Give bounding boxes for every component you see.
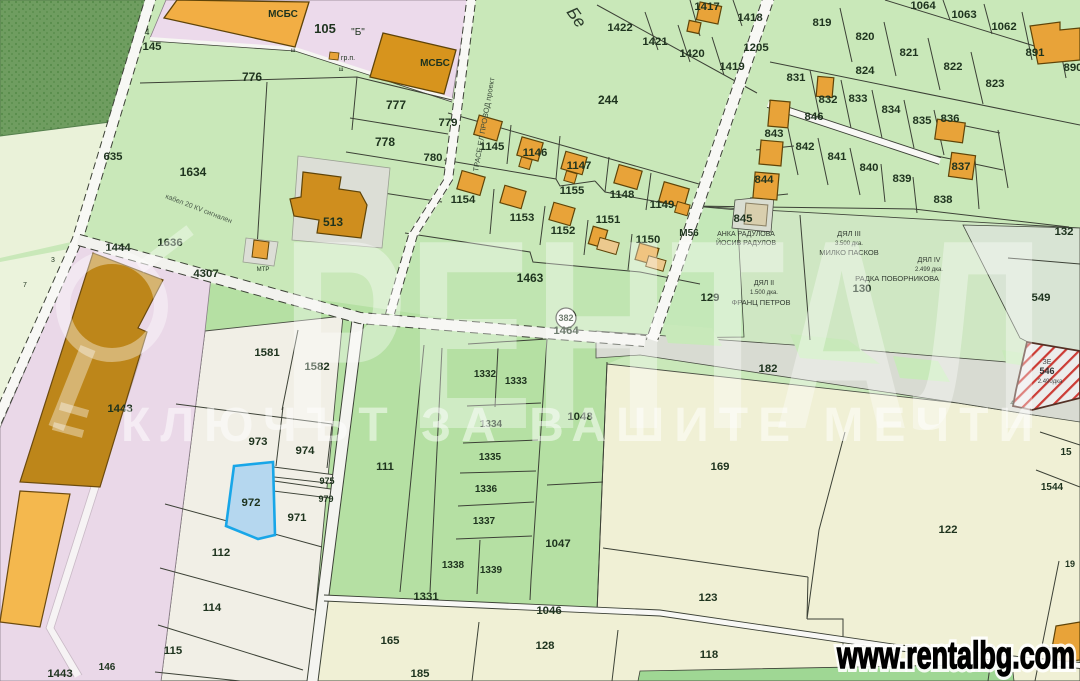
svg-text:"Б": "Б" (351, 27, 365, 38)
svg-text:979: 979 (318, 494, 333, 504)
svg-text:972: 972 (241, 497, 260, 509)
svg-text:1339: 1339 (480, 565, 503, 576)
svg-text:1062: 1062 (991, 21, 1016, 33)
svg-text:1418: 1418 (737, 12, 762, 24)
svg-text:1063: 1063 (951, 9, 976, 21)
svg-text:19: 19 (1065, 559, 1075, 569)
svg-text:777: 777 (386, 98, 406, 112)
svg-text:1205: 1205 (743, 42, 769, 54)
svg-text:1420: 1420 (679, 48, 704, 60)
svg-text:114: 114 (203, 602, 222, 614)
svg-text:1419: 1419 (719, 61, 744, 73)
svg-text:165: 165 (380, 635, 400, 647)
svg-text:843: 843 (764, 128, 783, 140)
svg-text:1581: 1581 (254, 347, 280, 359)
svg-text:244: 244 (598, 93, 618, 107)
svg-text:132: 132 (1054, 226, 1073, 238)
svg-text:www.rentalbg.com: www.rentalbg.com (836, 635, 1075, 677)
svg-text:836: 836 (940, 113, 959, 125)
svg-text:839: 839 (892, 173, 911, 185)
svg-text:819: 819 (812, 17, 831, 29)
svg-text:971: 971 (287, 512, 307, 524)
svg-text:122: 122 (938, 524, 957, 536)
svg-text:1146: 1146 (523, 147, 548, 159)
svg-text:824: 824 (855, 65, 875, 77)
svg-text:112: 112 (212, 547, 230, 559)
svg-text:833: 833 (848, 93, 867, 105)
svg-text:118: 118 (700, 649, 718, 661)
svg-text:823: 823 (985, 78, 1004, 90)
svg-text:890: 890 (1063, 62, 1080, 74)
svg-text:1338: 1338 (442, 560, 465, 571)
svg-text:837: 837 (951, 161, 970, 173)
svg-text:1046: 1046 (536, 605, 561, 617)
svg-text:гр.п.: гр.п. (341, 55, 355, 62)
svg-text:778: 778 (375, 135, 395, 149)
svg-text:776: 776 (242, 70, 262, 84)
svg-text:1147: 1147 (567, 160, 592, 172)
svg-text:1331: 1331 (413, 591, 439, 603)
svg-text:3: 3 (51, 257, 55, 264)
svg-text:115: 115 (164, 645, 183, 657)
svg-text:146: 146 (99, 662, 116, 673)
svg-text:821: 821 (899, 47, 919, 59)
svg-text:635: 635 (103, 151, 123, 163)
svg-text:1047: 1047 (545, 538, 570, 550)
svg-text:4: 4 (144, 27, 149, 37)
svg-text:ш: ш (291, 48, 296, 54)
svg-text:МТР: МТР (257, 267, 270, 273)
svg-text:834: 834 (881, 104, 901, 116)
svg-text:4307: 4307 (193, 268, 218, 280)
svg-text:1064: 1064 (910, 0, 936, 12)
svg-text:780: 780 (423, 152, 442, 164)
svg-text:841: 841 (827, 151, 847, 163)
svg-text:128: 128 (535, 640, 554, 652)
svg-text:123: 123 (698, 592, 717, 604)
svg-text:ш: ш (339, 67, 344, 73)
svg-text:1443: 1443 (47, 668, 72, 680)
svg-text:1337: 1337 (473, 516, 496, 527)
svg-text:МСБС: МСБС (268, 9, 298, 20)
svg-text:105: 105 (314, 21, 336, 36)
svg-text:842: 842 (795, 141, 814, 153)
svg-text:185: 185 (410, 668, 430, 680)
svg-text:835: 835 (912, 115, 932, 127)
svg-text:МСБС: МСБС (420, 58, 450, 69)
svg-text:840: 840 (859, 162, 878, 174)
svg-text:1421: 1421 (642, 36, 668, 48)
svg-text:7: 7 (23, 282, 27, 289)
svg-text:831: 831 (786, 72, 806, 84)
svg-text:145: 145 (142, 41, 162, 53)
svg-text:15: 15 (1060, 447, 1072, 458)
svg-text:846: 846 (804, 111, 823, 123)
svg-text:891: 891 (1025, 47, 1045, 59)
svg-text:820: 820 (855, 31, 874, 43)
svg-text:КЛЮЧЪТ ЗА ВАШИТЕ МЕЧТИ: КЛЮЧЪТ ЗА ВАШИТЕ МЕЧТИ (121, 399, 1043, 452)
svg-text:779: 779 (438, 117, 457, 129)
svg-text:1634: 1634 (180, 165, 207, 179)
svg-text:822: 822 (943, 61, 962, 73)
svg-text:1417: 1417 (694, 1, 719, 13)
svg-text:1422: 1422 (607, 22, 632, 34)
svg-text:832: 832 (818, 94, 837, 106)
